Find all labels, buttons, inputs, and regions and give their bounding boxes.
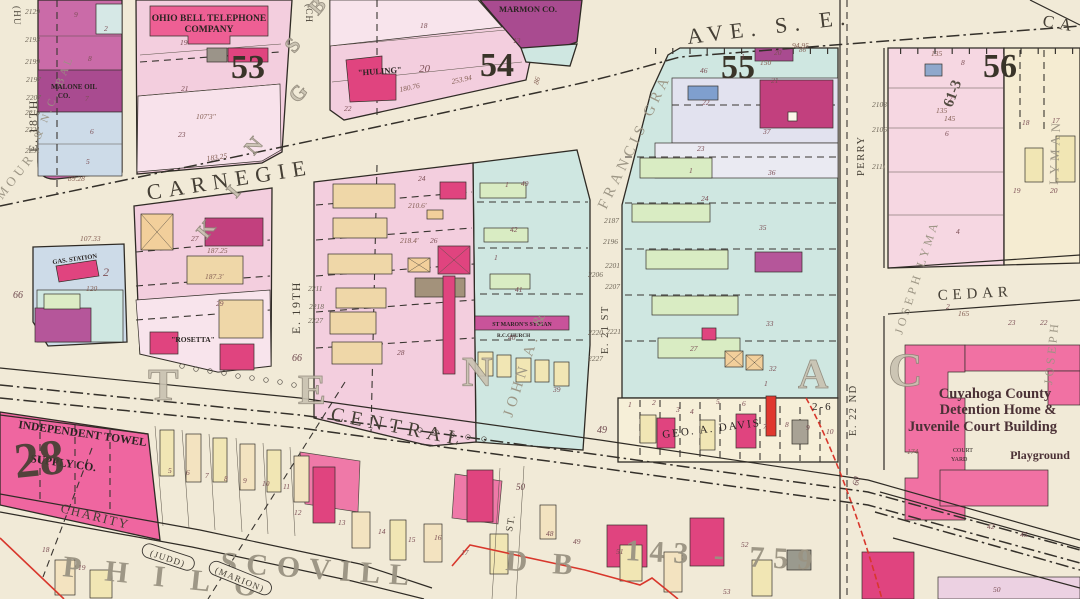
lot-number: 18 (42, 545, 50, 554)
ghost-letter: E (298, 368, 326, 414)
lot-number: 86 (799, 46, 807, 54)
marmon-label: MARMON CO. (499, 4, 557, 14)
lot-number: 2187 (604, 216, 619, 225)
lot-number: 2106 (872, 125, 887, 134)
lot-number: 6 (186, 468, 190, 477)
block-53: 53 (231, 49, 265, 86)
lot-number: 22 (1040, 318, 1048, 327)
lot-number: 8 (88, 54, 92, 63)
lot-number: 45 (1020, 530, 1028, 539)
lot-number: 33 (765, 319, 774, 328)
ghost-letter: C (888, 344, 923, 397)
lot-number: 4 (690, 407, 694, 416)
lot-number: 53 (723, 587, 731, 596)
lot-number: 9 (243, 476, 247, 485)
lot-number: 2 (652, 398, 656, 407)
lot-number: 5 (86, 157, 90, 166)
lot-number: 7 (205, 471, 209, 480)
lot-number: 2227 (588, 354, 603, 363)
lot-number: 21 (181, 84, 189, 93)
lot-number: 50 (516, 482, 526, 492)
lot-number: 1 (741, 52, 745, 61)
lot-number: 120 (86, 284, 98, 293)
lot-number: 1 (494, 253, 498, 262)
plat-map: CARNEGIE AVE. S. E. CENTRAL CHARITY CEDA… (0, 0, 1080, 599)
ghost-letter: T (148, 359, 179, 410)
lot-number: 22 (344, 104, 352, 113)
lot-number: 3 (675, 405, 680, 414)
lot-number: 6 (742, 399, 746, 408)
lot-number: 2197 (26, 75, 41, 84)
street-e22nd: E. 22 ND (848, 384, 859, 436)
lot-number: 2207 (26, 93, 41, 102)
block-54: 54 (480, 47, 514, 84)
lot-number: 2211 (308, 284, 322, 293)
lot-number: 49 (573, 537, 581, 546)
lot-number: 37 (762, 127, 771, 136)
lot-number: 11 (283, 482, 290, 491)
lot-number: 66 (13, 290, 23, 301)
plat-db: D B (505, 544, 583, 582)
lot-number: 187.3' (205, 272, 224, 281)
lot-number: 2220 (588, 328, 603, 337)
lot-number: 7 (763, 422, 767, 431)
lot-number: 23 (1008, 318, 1016, 327)
lot-number: 5 (716, 397, 720, 406)
lot-number: 41 (515, 285, 523, 294)
detention-home-label2: Detention Home & (940, 402, 1057, 418)
lot-number: 187.25 (207, 246, 228, 255)
lot-number: 18 (1022, 118, 1030, 127)
lot-number: 6 (90, 127, 94, 136)
lot-number: 8 (785, 420, 789, 429)
lot-number: 4 (956, 227, 960, 236)
lot-number: 51 (616, 547, 624, 556)
lot-number: 42 (510, 225, 518, 234)
lot-number: 2221 (606, 327, 621, 336)
lot-number: 19 (78, 563, 86, 572)
lot-number: 22 (702, 98, 710, 107)
lot-number: 210.6' (408, 201, 427, 210)
map-canvas[interactable]: CARNEGIE AVE. S. E. CENTRAL CHARITY CEDA… (0, 0, 1080, 599)
lot-number: 27 (191, 234, 199, 243)
davis-range-label: 2-6 (812, 401, 833, 413)
lot-number: 150 (760, 58, 772, 67)
lot-number: 2231 (25, 146, 40, 155)
lot-number: 2 (104, 24, 108, 33)
lot-number: 1 (628, 400, 632, 409)
lot-number: 2 (946, 302, 950, 311)
lot-number: 46 (700, 66, 708, 75)
lot-number: 19 (1013, 186, 1021, 195)
lot-number: 2193 (25, 35, 40, 44)
lot-number: 2201 (605, 261, 620, 270)
lot-number: 20 (419, 63, 431, 75)
lot-number: 26 (430, 236, 438, 245)
lot-number: 165 (958, 309, 970, 318)
lot-number: 218.4' (400, 236, 419, 245)
lot-number: 32 (768, 364, 777, 373)
lot-number: 2207 (605, 282, 620, 291)
lot-number: 24 (418, 174, 426, 183)
lot-number: 8 (961, 58, 965, 67)
lot-number: 18 (420, 21, 428, 30)
lot-number: 2196 (603, 237, 618, 246)
lot-number: 13 (513, 36, 521, 45)
lot-number: 2 (103, 265, 109, 279)
lot-number: 20 (774, 48, 782, 57)
street-perry: PERRY (856, 135, 867, 176)
lot-number: 107'3" (196, 112, 217, 121)
lot-number: 89.28 (68, 174, 85, 183)
lot-number: 23 (697, 144, 705, 153)
lot-number: 2103 (872, 100, 887, 109)
lot-number: 2199 (25, 57, 40, 66)
lot-number: 27 (690, 344, 698, 353)
lot-number: 17 (461, 548, 469, 557)
lot-number: 14 (378, 527, 386, 536)
ohio-bell-label2: COMPANY (185, 25, 234, 35)
lot-number: 49 (597, 425, 607, 436)
lot-number: 7 (85, 94, 89, 103)
lot-number: 21 (771, 76, 779, 85)
lot-number: 23 (178, 130, 186, 139)
lot-number: 5 (168, 466, 172, 475)
lot-number: 107.33 (80, 234, 101, 243)
ghost-letter: N (462, 350, 492, 396)
lot-number: 42 (987, 522, 995, 531)
lot-number: 17 (1052, 116, 1060, 125)
lot-number: 145 (944, 114, 956, 123)
detention-home-label: Cuyahoga County (939, 386, 1052, 402)
detention-home-label3: Juvenile Court Building (908, 419, 1058, 435)
lot-number: 2111 (872, 162, 886, 171)
lot-number: 1 (689, 166, 693, 175)
lot-number: 8 (224, 474, 228, 483)
lot-number: 7 (949, 94, 953, 103)
lot-number: 40 (508, 333, 516, 342)
lot-number: 12 (294, 508, 302, 517)
lot-number: 9 (74, 10, 78, 19)
lot-number: 35 (758, 223, 767, 232)
lot-number: 16 (434, 533, 442, 542)
lot-number: 66 (292, 353, 302, 364)
lot-number: 15 (408, 535, 416, 544)
lot-number: 24 (701, 194, 709, 203)
lot-number: 10 (826, 427, 834, 436)
ohio-bell-label: OHIO BELL TELEPHONE (152, 14, 266, 24)
lot-number: 174 (907, 447, 919, 456)
lot-number: 13 (338, 518, 346, 527)
lot-number: 2227 (308, 316, 323, 325)
street-e19th: E. 19TH (289, 281, 303, 334)
lot-number: 135 (931, 49, 943, 58)
plat-lyman-e: LYMAN (1046, 119, 1063, 185)
lot-number: 36 (767, 168, 776, 177)
lot-number: 1 (764, 379, 768, 388)
lot-number: 2218 (309, 302, 324, 311)
block-55: 55 (721, 49, 755, 86)
lot-number: 9 (806, 423, 810, 432)
lot-number: 2219 (25, 108, 40, 117)
lot-number: 52 (741, 540, 749, 549)
lot-number: 50 (993, 585, 1001, 594)
lot-number: 2221 (25, 125, 40, 134)
lot-number: 19 (180, 38, 188, 47)
court-yard-label: COURT (953, 448, 973, 454)
court-yard-label2: YARD (951, 457, 968, 463)
lot-number: 29 (216, 299, 224, 308)
lot-number: 2129 (25, 7, 40, 16)
lot-number: 49 (521, 179, 529, 188)
rosetta-label: "ROSETTA" (171, 335, 215, 344)
lot-number: 1 (505, 180, 509, 189)
block-56: 56 (983, 48, 1017, 85)
old-street-hu: (HU (12, 6, 22, 26)
lot-number: 6 (945, 129, 949, 138)
lot-number: 48 (546, 529, 554, 538)
lot-number: 2206 (588, 270, 603, 279)
playground-label: Playground (1010, 448, 1070, 462)
ghost-letter: A (798, 352, 829, 398)
lot-number: 28 (397, 348, 405, 357)
lot-number: 39 (552, 385, 561, 394)
ghost-letter: 28 (11, 428, 67, 489)
lot-number: 20 (1050, 186, 1058, 195)
lot-number: 10 (262, 479, 270, 488)
